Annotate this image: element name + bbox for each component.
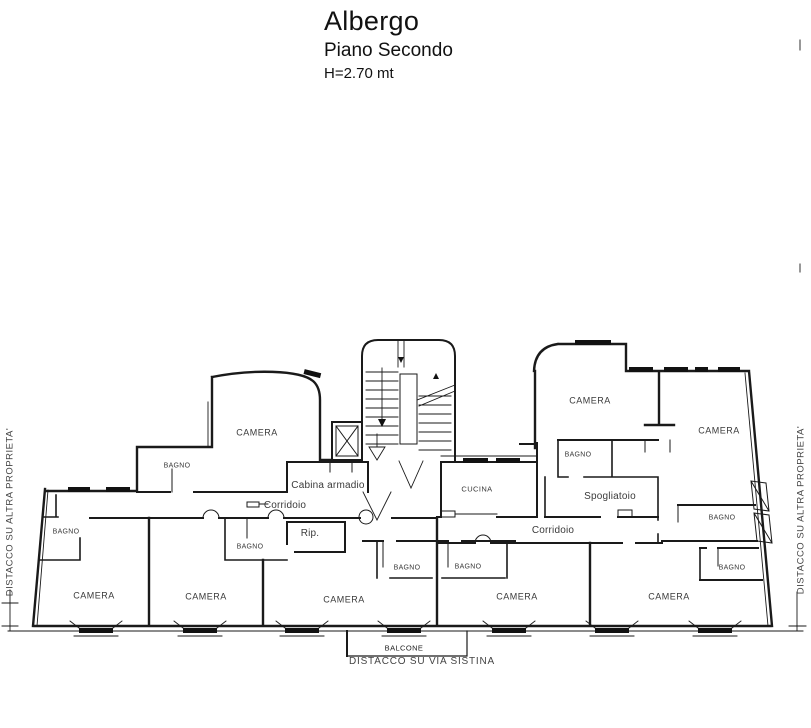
building-title: Albergo <box>324 6 453 37</box>
secondary-partitions <box>40 440 700 580</box>
room-label-camera-1: CAMERA <box>236 429 278 438</box>
window-sills <box>68 340 740 633</box>
room-label-bagno-2: BAGNO <box>53 529 80 536</box>
room-label-camera-3: CAMERA <box>185 593 227 602</box>
floor-subtitle: Piano Secondo <box>324 40 453 62</box>
room-label-bagno-4: BAGNO <box>394 565 421 572</box>
room-label-spogliatoio: Spogliatoio <box>584 492 636 502</box>
room-label-corridoio-2: Corridoio <box>532 526 574 536</box>
room-label-rip: Rip. <box>301 529 320 539</box>
room-label-camera-6: CAMERA <box>569 397 611 406</box>
room-label-bagno-7: BAGNO <box>709 515 736 522</box>
room-label-bagno-6: BAGNO <box>565 452 592 459</box>
room-label-bagno-5: BAGNO <box>455 564 482 571</box>
room-label-camera-5: CAMERA <box>496 593 538 602</box>
room-label-camera-8: CAMERA <box>648 593 690 602</box>
room-label-bagno-8: BAGNO <box>719 565 746 572</box>
room-label-camera-4: CAMERA <box>323 596 365 605</box>
ceiling-height-note: H=2.70 mt <box>324 65 453 82</box>
room-label-corridoio-1: Corridoio <box>264 501 306 511</box>
room-label-cabina-armadio: Cabina armadio <box>291 481 364 491</box>
boundary-label-bottom: DISTACCO SU VIA SISTINA <box>349 657 495 667</box>
boundary-label-left: DISTACCO SU ALTRA PROPRIETA' <box>5 428 15 596</box>
balcony-label: BALCONE <box>385 644 424 652</box>
room-label-camera-7: CAMERA <box>698 427 740 436</box>
outer-walls <box>33 344 772 626</box>
floor-plan-sheet: Albergo Piano Secondo H=2.70 mt CAMERA B… <box>0 0 811 728</box>
room-label-bagno-3: BAGNO <box>237 544 264 551</box>
room-label-camera-2: CAMERA <box>73 592 115 601</box>
drawing-title-block: Albergo Piano Secondo H=2.70 mt <box>324 6 453 82</box>
boundary-label-right: DISTACCO SU ALTRA PROPRIETA' <box>796 426 806 594</box>
room-label-bagno-1: BAGNO <box>164 463 191 470</box>
floor-plan-drawing <box>0 0 811 728</box>
room-label-cucina: CUCINA <box>461 485 492 493</box>
stair-arrows <box>378 357 439 427</box>
main-partitions <box>90 340 762 580</box>
fixtures-doors <box>172 374 772 567</box>
